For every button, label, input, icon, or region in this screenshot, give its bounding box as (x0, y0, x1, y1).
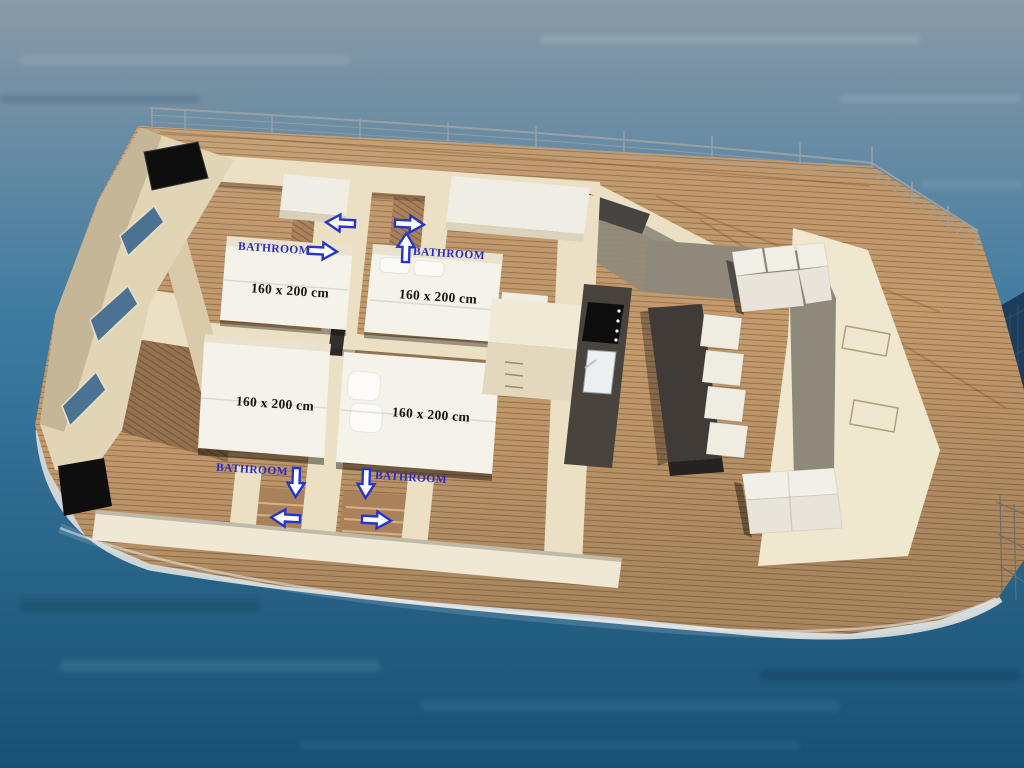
sofa-back-cushion (796, 243, 828, 269)
seat-cushion (704, 386, 746, 422)
galley-unit-front (482, 342, 584, 402)
pillow (347, 371, 381, 402)
pillow (349, 403, 383, 434)
tv-screen (58, 458, 112, 516)
seat-cushion (702, 350, 744, 386)
sofa-seat (746, 494, 842, 534)
seat-cushion (700, 314, 742, 350)
sink (583, 350, 616, 394)
sofa-back-cushion (764, 245, 798, 272)
yacht-deck-plan-render: BATHROOM BATHROOM BATHROOM BATHROOM 160 … (0, 0, 1024, 768)
cabinet (280, 174, 350, 216)
sofa-seat (736, 270, 804, 312)
seat-cushion (706, 422, 748, 458)
galley-unit (488, 298, 588, 350)
cooktop (582, 302, 624, 344)
pillow (413, 260, 444, 277)
cockpit-sofa (734, 468, 842, 538)
dining-area (640, 304, 748, 476)
sofa-back-cushion (732, 248, 766, 276)
